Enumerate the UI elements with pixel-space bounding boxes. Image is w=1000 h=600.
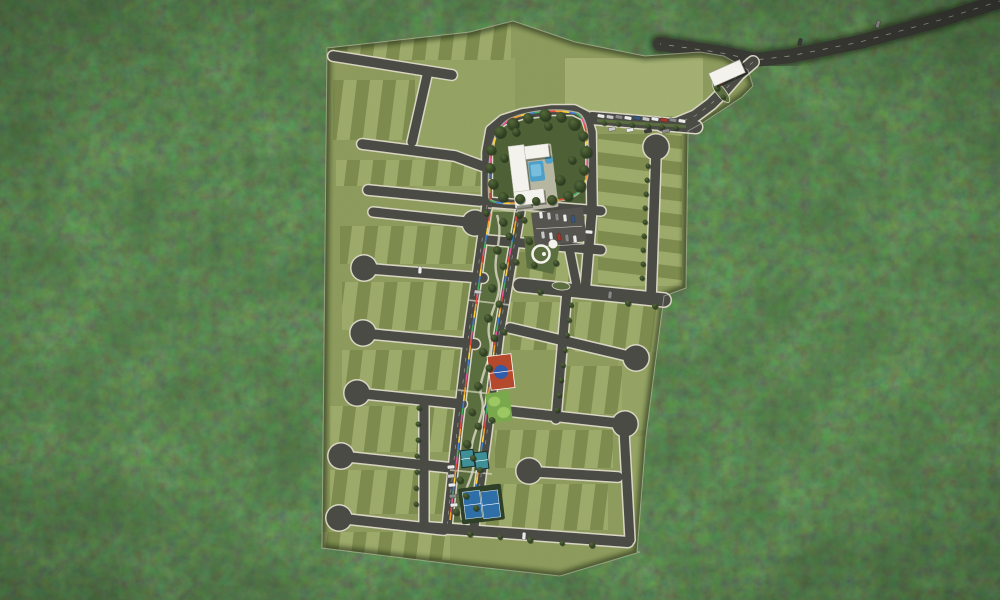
site-plan-svg xyxy=(0,0,1000,600)
vignette-overlay xyxy=(0,0,1000,600)
aerial-masterplan-view xyxy=(0,0,1000,600)
